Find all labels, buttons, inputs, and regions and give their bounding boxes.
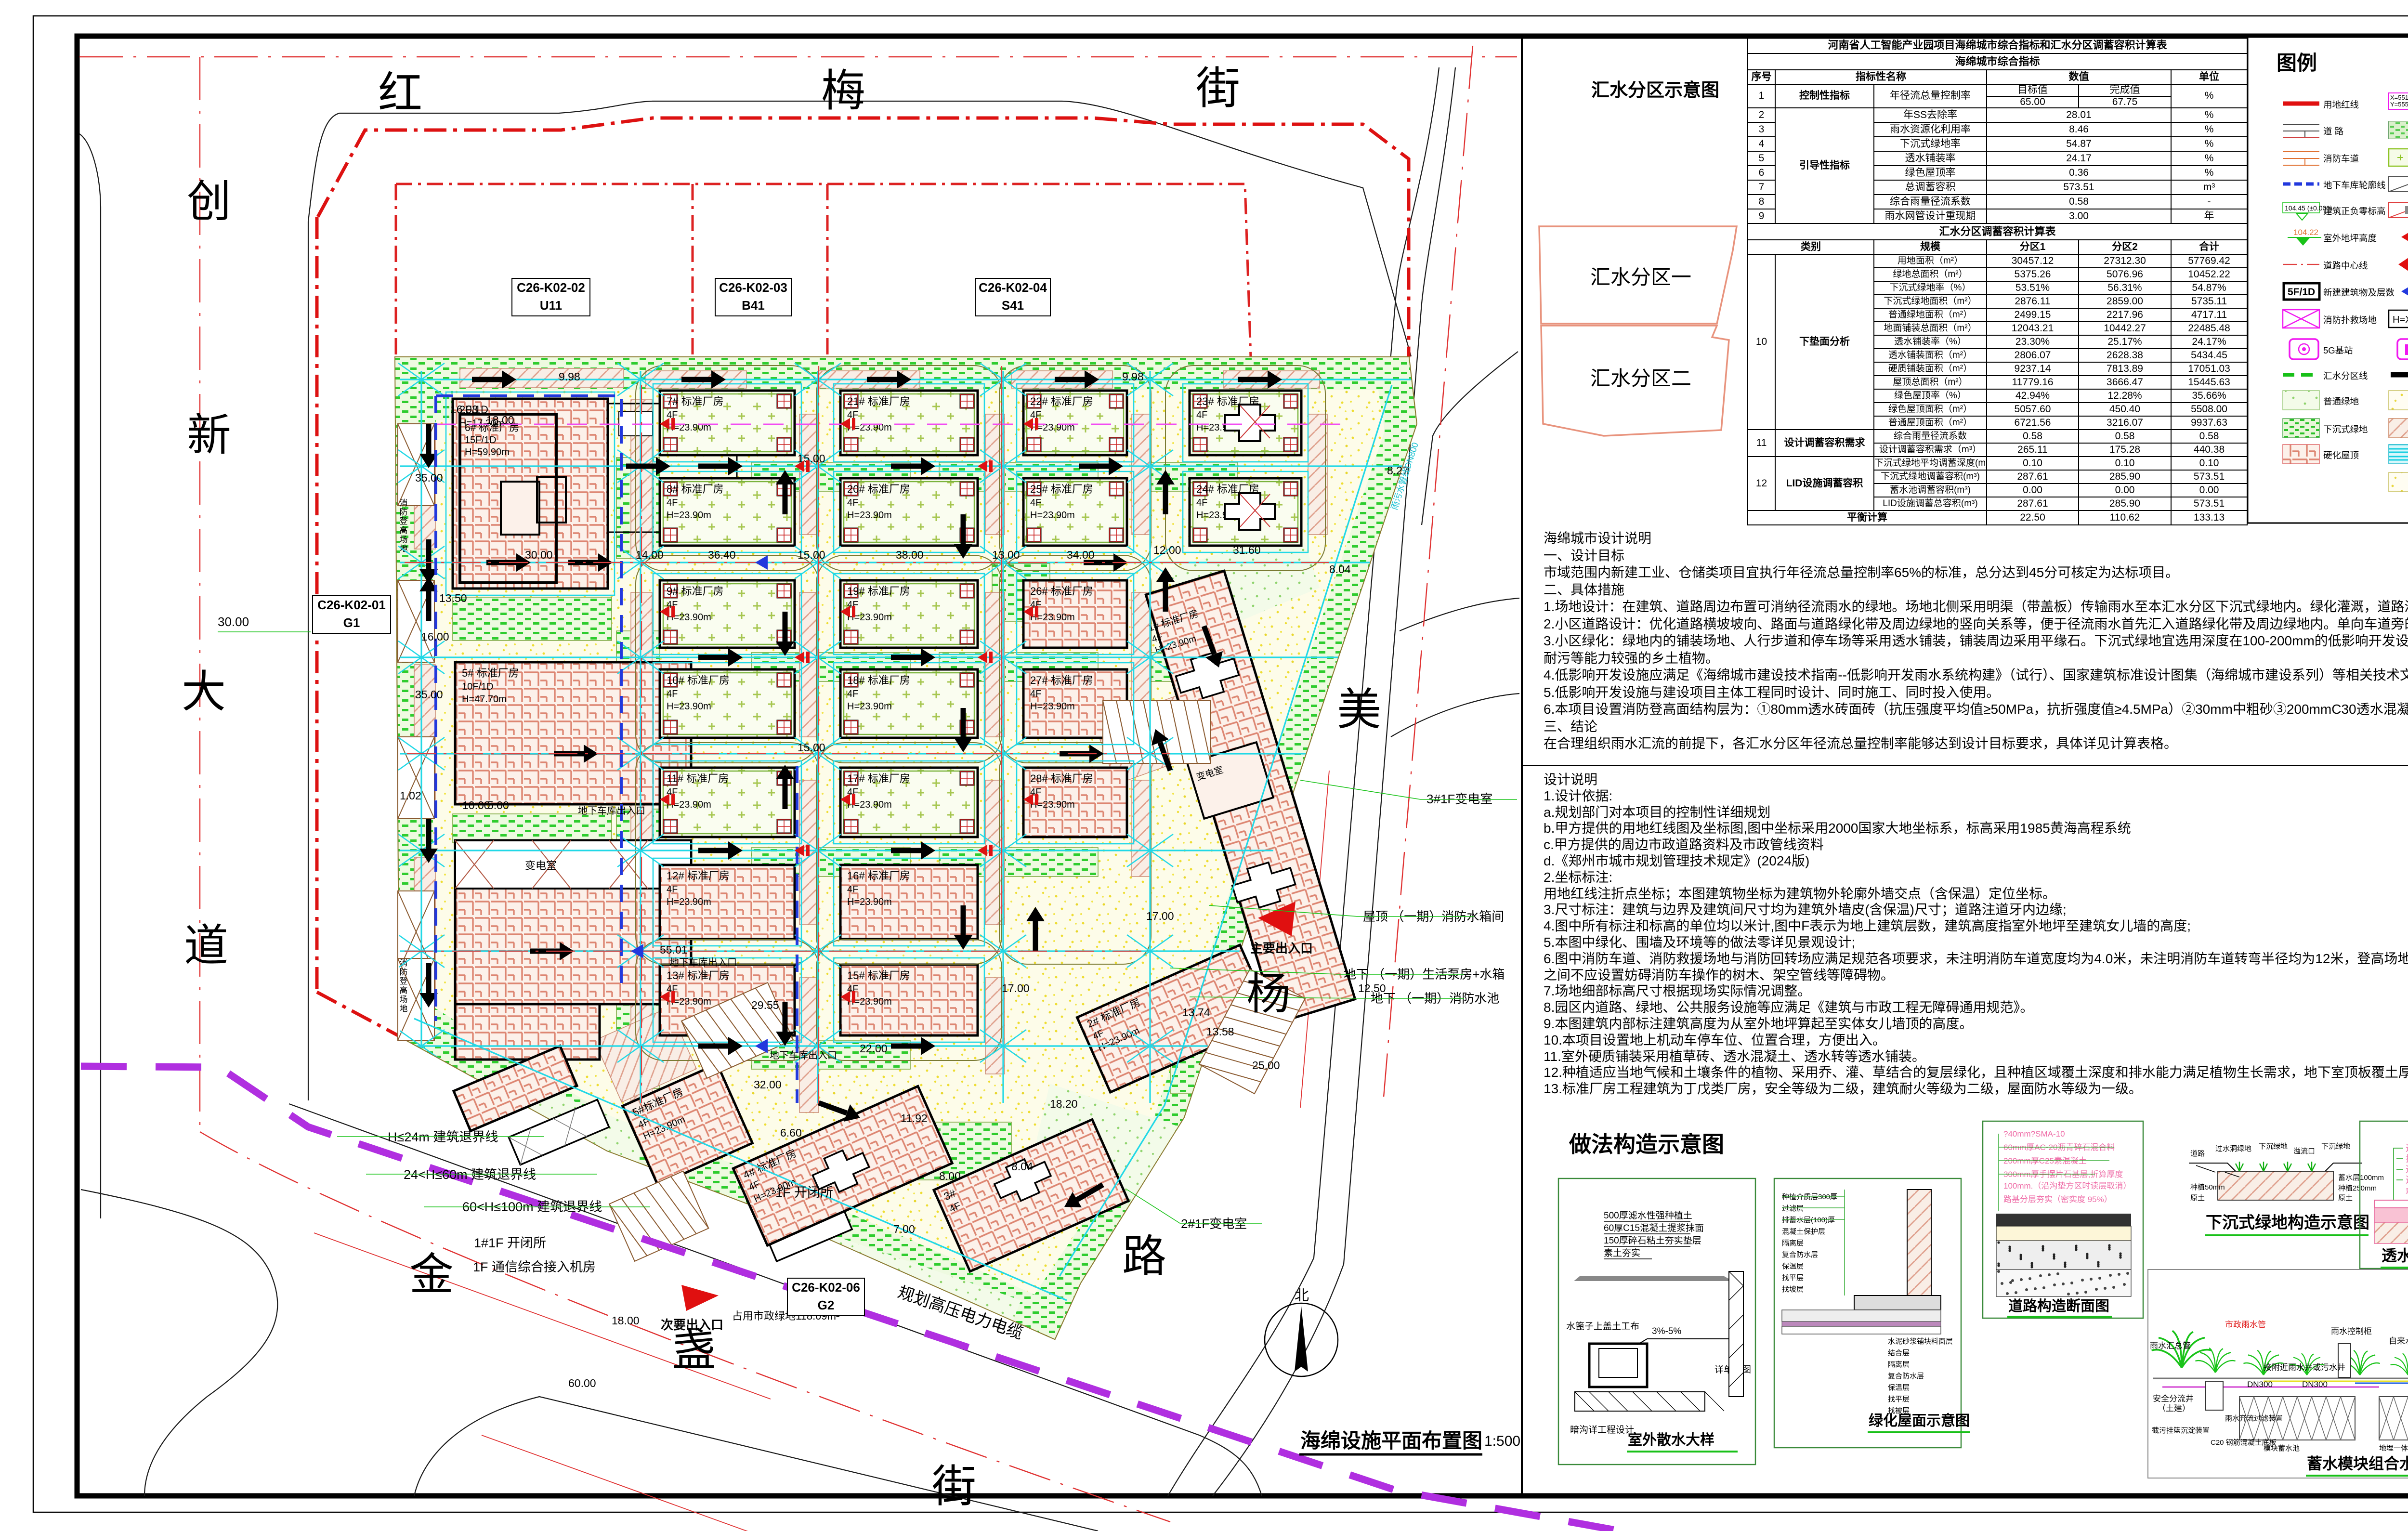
svg-text:5G基站: 5G基站 [2323, 345, 2353, 355]
svg-text:9# 标准厂房: 9# 标准厂房 [667, 585, 724, 597]
svg-text:10# 标准厂房: 10# 标准厂房 [667, 674, 730, 686]
svg-text:保温层: 保温层 [1782, 1262, 1804, 1270]
svg-text:过滤层: 过滤层 [1782, 1204, 1804, 1213]
svg-text:C20 钢筋混凝土底板: C20 钢筋混凝土底板 [2211, 1438, 2277, 1447]
svg-text:DN300: DN300 [2247, 1380, 2273, 1389]
svg-text:35.00: 35.00 [415, 688, 443, 701]
svg-text:31.60: 31.60 [1233, 544, 1261, 556]
svg-text:种植50mm: 种植50mm [2190, 1183, 2225, 1191]
svg-text:5# 标准厂房: 5# 标准厂房 [462, 667, 519, 679]
svg-text:地下车库轮廓线: 地下车库轮廓线 [2323, 180, 2386, 190]
svg-text:30.00: 30.00 [525, 549, 553, 561]
svg-text:1.02: 1.02 [400, 789, 421, 802]
svg-text:汇水分区线: 汇水分区线 [2323, 371, 2368, 381]
svg-text:H=23.90m: H=23.90m [667, 897, 711, 907]
svg-text:下沉绿地: 下沉绿地 [2259, 1142, 2288, 1151]
svg-text:100mm.（沿沟垫方区时读层取消）: 100mm.（沿沟垫方区时读层取消） [2003, 1181, 2131, 1191]
svg-text:4F: 4F [1196, 497, 1207, 508]
svg-text:截污挂篮沉淀装置: 截污挂篮沉淀装置 [2152, 1426, 2210, 1435]
svg-text:道 路: 道 路 [2323, 126, 2343, 136]
svg-text:红: 红 [378, 69, 422, 118]
svg-text:汇水分区一: 汇水分区一 [1590, 266, 1691, 288]
svg-text:水篦子上盖土工布: 水篦子上盖土工布 [1566, 1321, 1639, 1332]
svg-text:8.00: 8.00 [939, 1170, 961, 1182]
svg-text:H=23.90m: H=23.90m [667, 701, 711, 712]
svg-text:隔离层: 隔离层 [1888, 1361, 1910, 1369]
svg-text:15F/1D: 15F/1D [465, 435, 497, 445]
svg-text:透水铺装示意图: 透水铺装示意图 [2382, 1247, 2408, 1264]
svg-text:素土: 素土 [2406, 1187, 2408, 1195]
svg-text:安全分流井: 安全分流井 [2153, 1394, 2194, 1403]
svg-text:金: 金 [409, 1250, 454, 1299]
svg-text:4F: 4F [1030, 497, 1041, 508]
svg-text:街: 街 [1196, 64, 1240, 113]
svg-text:下沉绿地: 下沉绿地 [2321, 1142, 2350, 1151]
svg-text:13.00: 13.00 [992, 549, 1020, 561]
svg-text:8.04: 8.04 [1329, 563, 1351, 576]
svg-text:新建建筑物及层数: 新建建筑物及层数 [2323, 288, 2395, 298]
svg-text:找平层20-30mm: 找平层20-30mm [2406, 1153, 2408, 1164]
svg-text:1F 开闭所: 1F 开闭所 [775, 1185, 833, 1200]
svg-text:28# 标准厂房: 28# 标准厂房 [1030, 772, 1093, 785]
svg-text:蓄水模块组合水池剖面图: 蓄水模块组合水池剖面图 [2307, 1455, 2408, 1472]
svg-text:29.55: 29.55 [751, 999, 779, 1011]
svg-text:H=59.90m: H=59.90m [465, 447, 510, 458]
svg-text:大: 大 [182, 667, 226, 717]
svg-text:混凝土保护层: 混凝土保护层 [1782, 1228, 1825, 1236]
svg-text:36.40: 36.40 [708, 549, 736, 561]
svg-text:种植250mm: 种植250mm [2338, 1184, 2377, 1192]
svg-text:34.00: 34.00 [1067, 549, 1095, 561]
svg-text:创: 创 [187, 177, 231, 226]
svg-text:9.98: 9.98 [1122, 370, 1144, 383]
svg-text:道路: 道路 [2190, 1150, 2205, 1158]
svg-text:透水砖60-80mm: 透水砖60-80mm [2406, 1143, 2408, 1153]
svg-text:消防扑救场地: 消防扑救场地 [2323, 315, 2377, 325]
svg-text:硬化屋顶: 硬化屋顶 [2323, 450, 2359, 460]
svg-text:25.00: 25.00 [1252, 1059, 1280, 1072]
svg-text:22# 标准厂房: 22# 标准厂房 [1030, 395, 1093, 407]
svg-text:原土: 原土 [2338, 1194, 2353, 1202]
svg-text:18.20: 18.20 [1050, 1098, 1078, 1110]
svg-text:暗沟详工程设计: 暗沟详工程设计 [1570, 1425, 1634, 1435]
svg-text:17.00: 17.00 [1002, 982, 1030, 994]
svg-text:60.00: 60.00 [568, 1377, 596, 1389]
svg-text:蓄水层100mm: 蓄水层100mm [2338, 1174, 2384, 1182]
svg-text:下沉式绿地: 下沉式绿地 [2323, 424, 2368, 434]
svg-text:30.00: 30.00 [218, 615, 249, 629]
svg-text:X=55120.500: X=55120.500 [2390, 94, 2408, 101]
svg-text:4F: 4F [847, 497, 858, 508]
svg-text:6.60: 6.60 [780, 1126, 802, 1139]
svg-text:35.00: 35.00 [415, 471, 443, 484]
svg-text:H=23.90m: H=23.90m [847, 897, 892, 907]
svg-text:找平层: 找平层 [1782, 1274, 1804, 1282]
svg-text:过水洞绿地: 过水洞绿地 [2215, 1145, 2251, 1153]
svg-text:11# 标准厂房: 11# 标准厂房 [667, 772, 729, 785]
svg-text:美: 美 [1337, 685, 1381, 734]
svg-text:55.01: 55.01 [660, 943, 688, 956]
svg-text:水泥砂浆铺块料面层: 水泥砂浆铺块料面层 [1888, 1337, 1953, 1346]
svg-text:透水底基层150-200mm: 透水底基层150-200mm [2406, 1175, 2408, 1185]
svg-text:隔离层: 隔离层 [1782, 1239, 1804, 1247]
svg-text:路基分层夯实（密实度 95%）: 路基分层夯实（密实度 95%） [2003, 1195, 2112, 1204]
svg-text:7.00: 7.00 [893, 1223, 915, 1235]
svg-text:H=47.70m: H=47.70m [462, 694, 507, 705]
svg-text:18# 标准厂房: 18# 标准厂房 [847, 674, 910, 686]
svg-text:2#1F变电室: 2#1F变电室 [1181, 1217, 1247, 1231]
svg-text:8# 标准厂房: 8# 标准厂房 [667, 483, 724, 495]
svg-text:室外散水大样: 室外散水大样 [1628, 1432, 1714, 1448]
svg-text:15.00: 15.00 [798, 741, 825, 754]
svg-text:用地红线: 用地红线 [2323, 100, 2359, 110]
svg-text:普通绿地: 普通绿地 [2323, 396, 2359, 406]
svg-text:种植介质层300厚: 种植介质层300厚 [1782, 1193, 1837, 1201]
svg-text:道路构造断面图: 道路构造断面图 [2008, 1298, 2109, 1314]
svg-text:12.50: 12.50 [1358, 982, 1386, 994]
svg-text:H=23.90m: H=23.90m [667, 510, 711, 521]
svg-text:地埋一体机: 地埋一体机 [2379, 1444, 2408, 1452]
svg-text:19# 标准厂房: 19# 标准厂房 [847, 585, 910, 597]
svg-text:保温层: 保温层 [1888, 1384, 1910, 1392]
svg-text:1:500: 1:500 [1484, 1433, 1520, 1449]
svg-text:路: 路 [1122, 1232, 1166, 1281]
svg-text:24<H≤60m 建筑退界线: 24<H≤60m 建筑退界线 [404, 1167, 536, 1182]
svg-text:雨水控制柜: 雨水控制柜 [2331, 1327, 2372, 1336]
svg-text:新: 新 [187, 411, 231, 460]
svg-text:25# 标准厂房: 25# 标准厂房 [1030, 483, 1093, 495]
svg-text:10F/1D: 10F/1D [462, 681, 494, 692]
svg-text:Y=55585.199: Y=55585.199 [2390, 101, 2408, 108]
svg-text:1F 通信综合接入机房: 1F 通信综合接入机房 [473, 1260, 596, 1274]
svg-text:5.00: 5.00 [487, 799, 509, 811]
svg-text:H=23.90m: H=23.90m [847, 510, 892, 521]
svg-text:街: 街 [932, 1462, 976, 1511]
svg-text:26# 标准厂房: 26# 标准厂房 [1030, 585, 1093, 597]
svg-text:溢流口: 溢流口 [2293, 1147, 2315, 1155]
svg-text:4F: 4F [667, 884, 678, 895]
svg-text:17# 标准厂房: 17# 标准厂房 [847, 772, 910, 785]
svg-text:150厚碎石粘土夯实垫层: 150厚碎石粘土夯实垫层 [1604, 1235, 1701, 1246]
svg-text:500厚滤水性强种植土: 500厚滤水性强种植土 [1604, 1210, 1692, 1221]
svg-text:道路中心线: 道路中心线 [2323, 261, 2368, 271]
svg-text:8.04: 8.04 [1011, 1160, 1033, 1173]
svg-text:盏: 盏 [672, 1326, 716, 1375]
svg-text:复合防水层: 复合防水层 [1888, 1372, 1924, 1380]
svg-text:38.00: 38.00 [896, 549, 924, 561]
svg-text:H≤24m 建筑退界线: H≤24m 建筑退界线 [388, 1130, 498, 1144]
svg-text:排蓄水层(100)厚: 排蓄水层(100)厚 [1782, 1216, 1835, 1224]
svg-text:H=23.90m: H=23.90m [847, 701, 892, 712]
svg-text:地下车库出入口: 地下车库出入口 [578, 805, 645, 816]
svg-text:4F: 4F [667, 689, 678, 699]
svg-text:汇水分区示意图: 汇水分区示意图 [1591, 80, 1719, 101]
svg-text:原土: 原土 [2190, 1194, 2205, 1202]
svg-text:16# 标准厂房: 16# 标准厂房 [847, 870, 910, 882]
svg-text:16.03: 16.03 [450, 403, 478, 416]
svg-text:变电室: 变电室 [525, 860, 557, 872]
svg-text:绿化屋面示意图: 绿化屋面示意图 [1869, 1413, 1970, 1429]
svg-text:5F/1D: 5F/1D [2288, 287, 2315, 298]
svg-text:13# 标准厂房: 13# 标准厂房 [667, 969, 730, 981]
svg-text:消防登高场地: 消防登高场地 [398, 498, 408, 553]
svg-text:1#1F 开闭所: 1#1F 开闭所 [474, 1236, 546, 1250]
svg-text:13.74: 13.74 [1182, 1006, 1210, 1019]
svg-text:杨: 杨 [1246, 969, 1291, 1019]
svg-text:做法构造示意图: 做法构造示意图 [1569, 1132, 1724, 1157]
svg-text:60厚C15混凝土提浆抹面: 60厚C15混凝土提浆抹面 [1604, 1223, 1704, 1233]
svg-text:21# 标准厂房: 21# 标准厂房 [847, 395, 910, 407]
svg-text:找平层: 找平层 [1888, 1395, 1910, 1403]
svg-text:4F: 4F [1030, 689, 1041, 699]
svg-text:地下车库出入口: 地下车库出入口 [770, 1050, 837, 1061]
svg-text:透水基层100-150mm: 透水基层100-150mm [2406, 1164, 2408, 1175]
svg-text:13.58: 13.58 [1206, 1025, 1234, 1038]
svg-text:市政雨水管: 市政雨水管 [2225, 1320, 2266, 1329]
svg-text:11.92: 11.92 [901, 1112, 928, 1125]
svg-text:汇水分区二: 汇水分区二 [1590, 367, 1691, 390]
svg-text:建筑正负零标高: 建筑正负零标高 [2323, 206, 2386, 216]
svg-text:下沉式绿地构造示意图: 下沉式绿地构造示意图 [2206, 1214, 2369, 1232]
svg-text:图例: 图例 [2277, 52, 2317, 74]
svg-text:10.00: 10.00 [462, 799, 490, 811]
svg-text:雨水弃流过滤装置: 雨水弃流过滤装置 [2225, 1414, 2283, 1423]
svg-text:（土建）: （土建） [2158, 1404, 2190, 1413]
svg-text:13.50: 13.50 [439, 592, 467, 604]
svg-text:消防车道: 消防车道 [2323, 154, 2359, 164]
svg-text:素土夯实: 素土夯实 [1604, 1248, 1640, 1258]
svg-text:雨水汇总管: 雨水汇总管 [2150, 1341, 2191, 1350]
svg-text:复合防水层: 复合防水层 [1782, 1250, 1818, 1259]
svg-text:DN300: DN300 [2302, 1380, 2328, 1389]
svg-text:海绵设施平面布置图: 海绵设施平面布置图 [1300, 1429, 1482, 1452]
svg-text:18.00: 18.00 [486, 414, 514, 426]
svg-text:15.00: 15.00 [798, 549, 825, 561]
svg-text:16.00: 16.00 [421, 630, 449, 643]
svg-text:H=XX.XX: H=XX.XX [2393, 314, 2408, 325]
svg-text:22.00: 22.00 [860, 1042, 888, 1055]
svg-text:14.00: 14.00 [636, 549, 664, 561]
svg-text:4F: 4F [847, 884, 858, 895]
svg-text:12.00: 12.00 [1153, 544, 1181, 556]
svg-text:3#1F变电室: 3#1F变电室 [1426, 792, 1492, 806]
svg-text:17.00: 17.00 [1146, 910, 1174, 922]
svg-text:27# 标准厂房: 27# 标准厂房 [1030, 674, 1093, 686]
svg-text:自来水补水De50: 自来水补水De50 [2389, 1336, 2408, 1346]
svg-text:4F: 4F [847, 689, 858, 699]
svg-text:?40mm?SMA-10: ?40mm?SMA-10 [2003, 1129, 2065, 1138]
svg-text:7# 标准厂房: 7# 标准厂房 [667, 395, 724, 407]
svg-text:9.98: 9.98 [559, 370, 580, 383]
svg-text:道: 道 [184, 921, 228, 970]
svg-text:H=23.90m: H=23.90m [1030, 510, 1075, 521]
svg-text:地下车库出入口: 地下车库出入口 [669, 957, 737, 968]
svg-text:3%-5%: 3%-5% [1652, 1326, 1681, 1336]
svg-text:20# 标准厂房: 20# 标准厂房 [847, 483, 910, 495]
svg-text:室外地坪高度: 室外地坪高度 [2323, 233, 2377, 243]
svg-text:104.22: 104.22 [2293, 228, 2318, 237]
svg-text:18.00: 18.00 [612, 1314, 640, 1327]
svg-text:北: 北 [1295, 1288, 1309, 1304]
svg-text:接附近雨水井或污水井: 接附近雨水井或污水井 [2264, 1363, 2345, 1372]
svg-text:找坡层: 找坡层 [1782, 1285, 1804, 1294]
svg-text:32.00: 32.00 [754, 1078, 782, 1091]
svg-text:H=23.90m: H=23.90m [1030, 701, 1075, 712]
svg-text:4F: 4F [1196, 410, 1207, 420]
svg-text:4F: 4F [667, 497, 678, 508]
svg-text:梅: 梅 [821, 66, 865, 116]
svg-text:主要出入口: 主要出入口 [1250, 941, 1313, 955]
svg-text:15# 标准厂房: 15# 标准厂房 [847, 969, 910, 981]
svg-text:12# 标准厂房: 12# 标准厂房 [667, 870, 730, 882]
svg-text:结合层: 结合层 [1888, 1349, 1910, 1357]
